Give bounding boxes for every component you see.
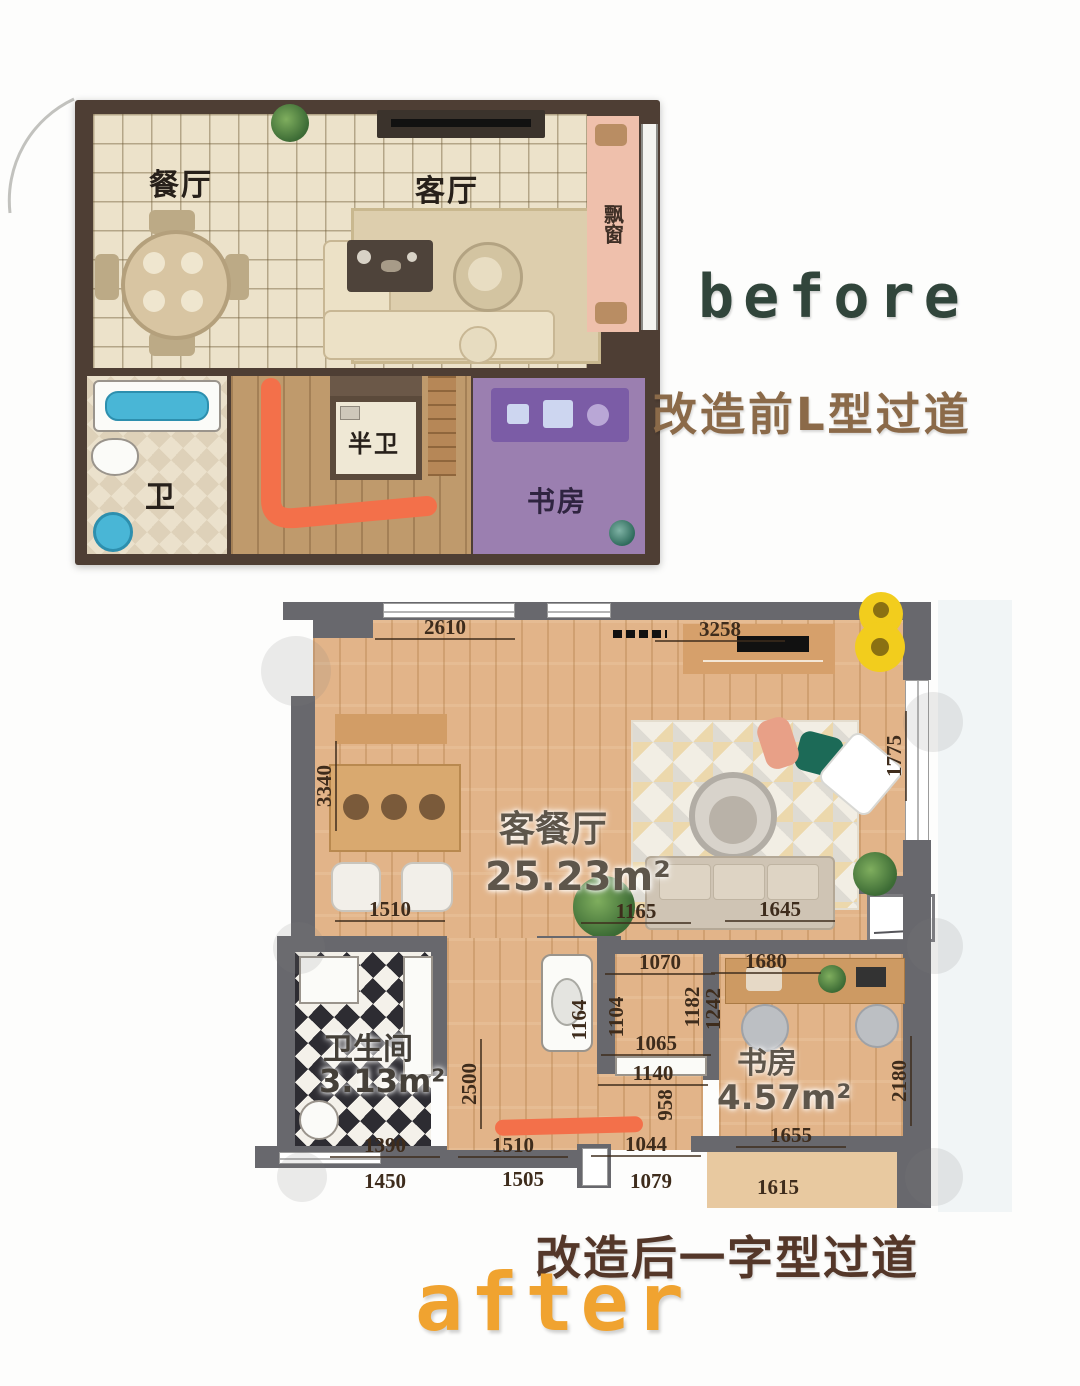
living-dining-label: 客餐厅	[499, 800, 607, 852]
bay-cushion	[595, 302, 627, 324]
study-before: 书房	[473, 378, 645, 554]
outside-area	[938, 600, 1012, 1212]
dim: 1164	[568, 975, 590, 1065]
dim: 1510	[458, 1134, 568, 1158]
dim: 1044	[591, 1133, 701, 1157]
dim: 1645	[725, 898, 835, 922]
tv-console	[377, 110, 545, 138]
watermark-dot	[907, 918, 963, 974]
round-table	[689, 772, 777, 860]
watermark-dot	[905, 1148, 963, 1206]
bay-window: 飘窗	[587, 116, 639, 332]
dim: 2180	[888, 1036, 912, 1126]
dining-chair	[95, 254, 119, 300]
dim: 1065	[601, 1032, 711, 1056]
living-dining-area: 25.23m²	[485, 854, 671, 900]
dim: 1615	[723, 1176, 833, 1198]
dim: 1510	[335, 898, 445, 922]
bathroom-area: 3.13m²	[319, 1062, 445, 1100]
dining-table	[329, 764, 461, 852]
watermark-dot	[903, 692, 963, 752]
half-bathroom: 半卫	[330, 396, 422, 480]
wall	[291, 696, 315, 940]
dim: 1680	[711, 950, 821, 974]
yellow-pin-icon	[853, 592, 909, 668]
dim-top-right: 3258	[655, 618, 785, 642]
living-dining-tiled-area: 餐厅 客厅	[93, 114, 587, 368]
dim-left: 3340	[313, 741, 337, 831]
study-label: 书房	[737, 1038, 797, 1082]
study-label: 书房	[527, 480, 587, 520]
bathroom-before: 卫	[87, 376, 227, 554]
shelf-cabinet	[428, 376, 456, 476]
dim-right: 1775	[883, 711, 907, 801]
watermark-dot	[273, 922, 325, 974]
dim: 1165	[581, 900, 691, 924]
dining-table	[121, 230, 231, 340]
before-caption: 改造前L型过道	[652, 378, 972, 443]
sofa	[323, 310, 555, 360]
plant-icon	[609, 520, 635, 546]
half-bath-sink-icon	[340, 406, 360, 420]
bay-window-label: 飘窗	[599, 204, 628, 244]
dim: 1140	[598, 1062, 708, 1086]
half-bath-label: 半卫	[348, 424, 400, 459]
dim: 1390	[330, 1134, 440, 1158]
bath-label: 卫	[145, 472, 177, 516]
dim: 1079	[596, 1170, 706, 1192]
dim: 1450	[330, 1170, 440, 1192]
bay-cushion	[595, 124, 627, 146]
plant-icon	[853, 852, 897, 896]
dining-room-label: 餐厅	[149, 160, 213, 204]
dim: 2500	[458, 1039, 482, 1129]
plant-icon	[271, 104, 309, 142]
side-table	[459, 326, 497, 364]
living-room-label: 客厅	[415, 166, 479, 210]
study-area: 4.57m²	[717, 1078, 851, 1118]
dim-top-left: 2610	[375, 616, 515, 640]
after-floor-plan: 客餐厅 25.23m² 卫生间 3.13m²	[255, 600, 935, 1215]
sideboard	[335, 714, 447, 744]
door-arc	[4, 95, 78, 220]
rattan-armchair	[453, 242, 523, 312]
before-label: before	[698, 262, 969, 332]
dim: 1505	[468, 1168, 578, 1190]
watermark-dot	[277, 1152, 327, 1202]
dim: 1655	[736, 1124, 846, 1148]
window	[641, 124, 658, 330]
watermark-dot	[261, 636, 331, 706]
wall	[313, 602, 373, 638]
before-floor-plan: 餐厅 客厅	[75, 100, 660, 565]
storage-alcove	[330, 376, 422, 396]
bathtub	[93, 380, 221, 432]
window	[547, 603, 611, 618]
wall	[431, 936, 447, 1076]
page: 餐厅 客厅	[0, 0, 1080, 1386]
after-label: after	[415, 1256, 691, 1349]
toilet-icon	[91, 438, 139, 476]
sink-icon	[93, 512, 133, 552]
coffee-table	[347, 240, 433, 292]
desk	[491, 388, 629, 442]
